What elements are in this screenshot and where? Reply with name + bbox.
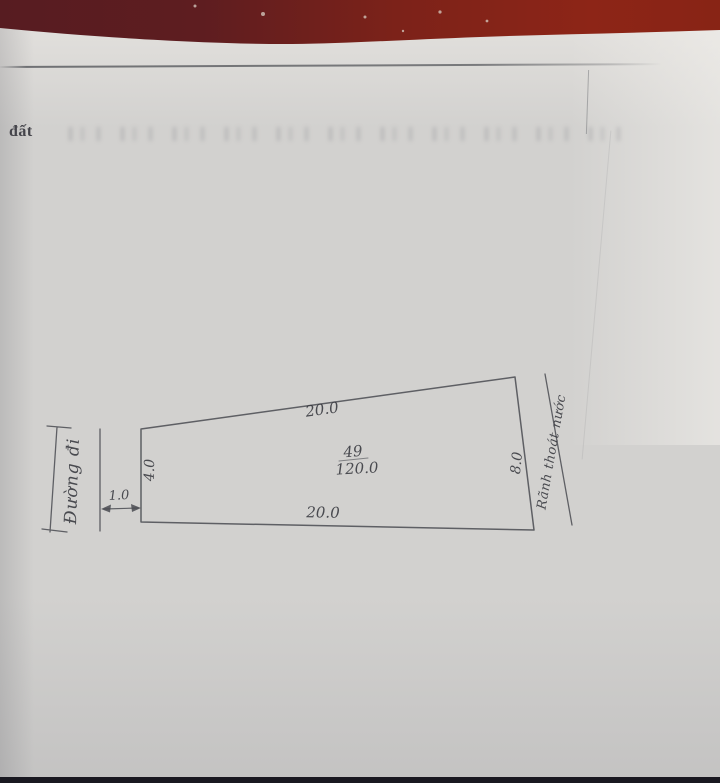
photo-bottom-edge <box>0 777 720 783</box>
margin-label: đất <box>9 124 33 140</box>
parcel-number: 49 <box>343 444 363 461</box>
top-edge-dimension: 20.0 <box>304 400 339 420</box>
parcel-area: 120.0 <box>335 460 379 477</box>
left-edge-dimension: 4.0 <box>143 459 157 482</box>
parcel-sketch <box>0 0 720 783</box>
right-edge-dimension: 8.0 <box>509 451 525 475</box>
photographed-survey-document: đất Đường đi 4.0 1.0 20.0 20.0 49 120.0 … <box>0 0 720 783</box>
bottom-edge-dimension: 20.0 <box>306 505 340 521</box>
road-width-dimension: 1.0 <box>108 489 129 503</box>
road-label: Đường đi <box>63 437 83 524</box>
